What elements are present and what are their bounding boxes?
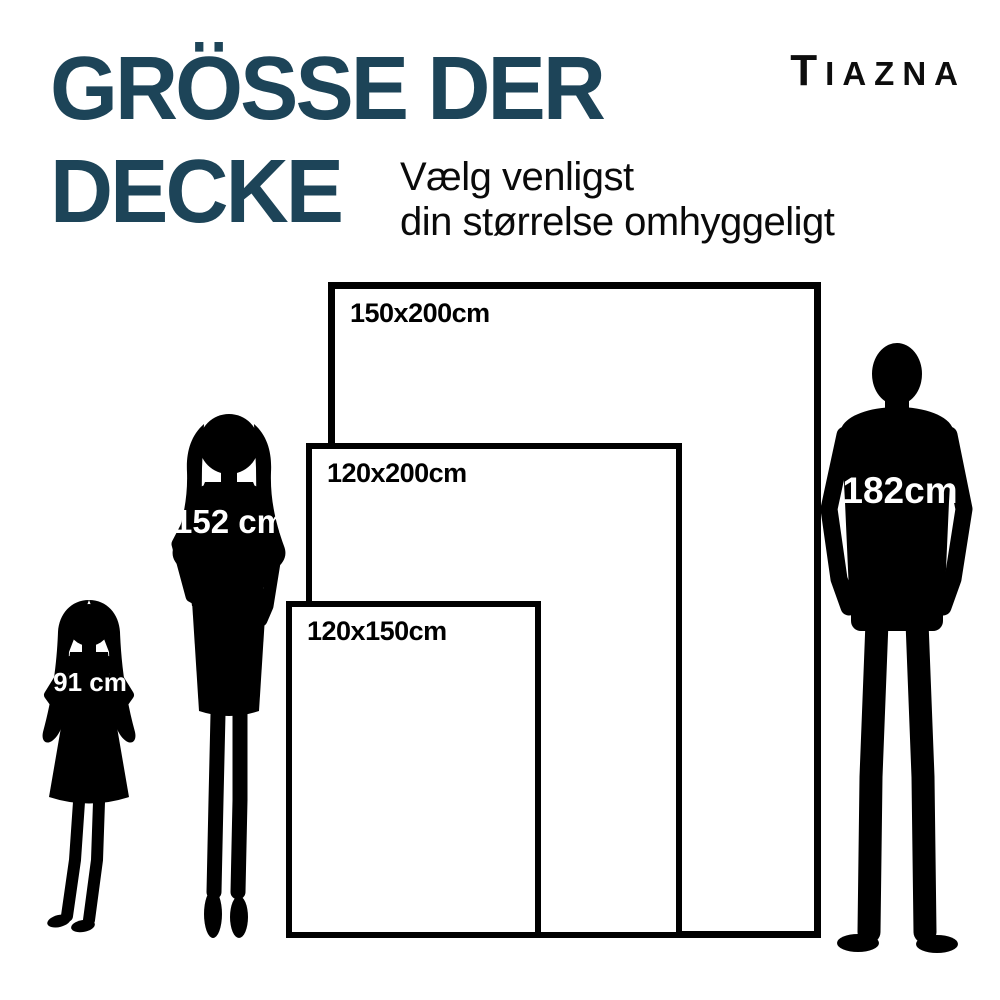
page-subtitle: Vælg venligst din størrelse omhyggeligt	[400, 155, 834, 245]
man-silhouette-icon	[829, 343, 964, 953]
woman-silhouette-icon	[173, 414, 286, 938]
blanket-size-label: 120x150cm	[307, 616, 535, 647]
size-guide-infographic: GRÖSSE DER DECKE Vælg venligst din størr…	[0, 0, 1000, 1000]
blanket-size-label: 150x200cm	[350, 298, 814, 329]
girl-silhouette-icon	[43, 600, 136, 934]
woman-height-label: 152 cm	[163, 503, 297, 541]
brand-logo: TIAZNA	[790, 46, 966, 96]
page-title-line1: GRÖSSE DER	[50, 38, 603, 141]
blanket-size-label: 120x200cm	[327, 458, 676, 489]
blanket-rect-120x150: 120x150cm	[286, 601, 541, 938]
page-subtitle-line1: Vælg venligst	[400, 155, 834, 200]
girl-height-label: 91 cm	[45, 667, 135, 698]
page-subtitle-line2: din størrelse omhyggeligt	[400, 200, 834, 245]
man-height-label: 182cm	[833, 470, 967, 512]
